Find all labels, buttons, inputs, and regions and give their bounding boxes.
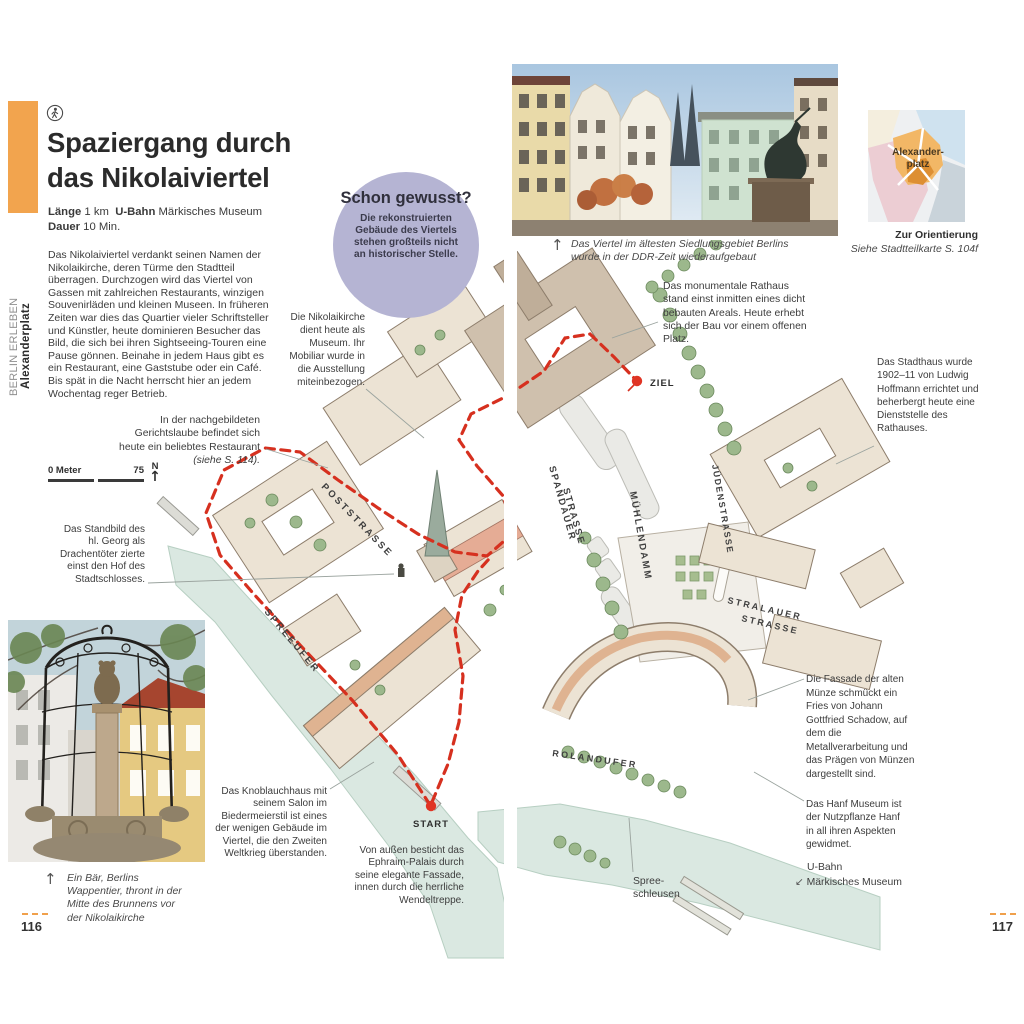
- tour-info: Länge 1 km U-Bahn Märkisches Museum Daue…: [48, 205, 288, 235]
- note-standbild: Das Standbild des hl. Georg als Drachent…: [55, 524, 145, 586]
- note-ubahn: U-Bahn ↙ Märkisches Museum: [795, 861, 925, 890]
- ubahn-station-line2: Märkisches Museum: [807, 877, 902, 888]
- top-photo-caption: Das Viertel im ältesten Siedlungsgebiet …: [571, 238, 799, 264]
- length-value: 1 km: [84, 206, 108, 218]
- sidebar-tab: [8, 101, 38, 213]
- page-number-right: 117: [992, 919, 1013, 934]
- duration-label: Dauer: [48, 221, 80, 233]
- book-spread: { "colors": { "accent_orange": "#F2A44E"…: [0, 0, 1024, 1024]
- left-page-dash: [22, 913, 48, 915]
- note-gerichtslaube: In der nachgebildeten Gerichtslaube befi…: [110, 414, 260, 468]
- orientation-caption: Zur Orientierung Siehe Stadtteilkarte S.…: [848, 229, 978, 256]
- scale-zero: 0 Meter: [48, 465, 81, 476]
- duration-value: 10 Min.: [83, 221, 120, 233]
- ubahn-station-line1: U-Bahn: [807, 862, 842, 873]
- ubahn-label: U-Bahn: [115, 206, 155, 218]
- length-label: Länge: [48, 206, 81, 218]
- page-number-left: 116: [21, 919, 42, 934]
- note-stadthaus: Das Stadthaus wurde 1902–11 von Ludwig H…: [877, 356, 979, 436]
- note-nikolaikirche: Die Nikolaikirche dient heute als Museum…: [282, 311, 365, 389]
- intro-paragraph: Das Nikolaiviertel verdankt seinen Namen…: [48, 249, 270, 400]
- bottom-photo-caption: Ein Bär, Berlins Wappentier, thront in d…: [67, 872, 189, 925]
- page-title: Spaziergang durch das Nikolaiviertel: [47, 126, 327, 195]
- bottom-photo: [8, 620, 205, 862]
- ubahn-arrow-icon: ↙: [795, 876, 804, 888]
- page-gutter: [504, 244, 517, 960]
- ziel-label: ZIEL: [650, 378, 675, 389]
- svg-text:platz: platz: [907, 159, 930, 170]
- svg-text:Alexander-: Alexander-: [892, 147, 944, 158]
- ubahn-value: Märkisches Museum: [159, 206, 263, 218]
- district-label: Alexanderplatz: [20, 303, 32, 389]
- ziel-marker: ZIEL: [628, 376, 675, 391]
- north-arrow: N ↑: [147, 462, 163, 484]
- badge-text: Die rekonstruierten Gebäude des Viertels…: [348, 213, 464, 261]
- scale-bar: 0 Meter 75: [48, 465, 144, 482]
- badge-title: Schon gewusst?: [333, 189, 479, 208]
- note-gerichtslaube-ref: (siehe S. 114).: [193, 455, 260, 466]
- top-caption-arrow-icon: ↑: [551, 239, 564, 252]
- statue-icon: [398, 563, 405, 577]
- note-knoblauchhaus: Das Knoblauchhaus mit seinem Salon im Bi…: [215, 786, 327, 860]
- walk-icon: [46, 104, 64, 122]
- north-arrow-icon: ↑: [149, 469, 161, 485]
- note-rathaus: Das monumentale Rathaus stand einst inmi…: [663, 280, 815, 346]
- note-ephraim: Von außen besticht das Ephraim-Palais du…: [352, 845, 464, 907]
- did-you-know-badge: Schon gewusst? Die rekonstruierten Gebäu…: [333, 172, 479, 318]
- scale-end: 75: [133, 465, 144, 476]
- sidebar-vertical-label: BERLIN ERLEBEN Alexanderplatz: [8, 218, 38, 396]
- series-label: BERLIN ERLEBEN: [8, 298, 20, 396]
- orientation-map: Alexander- platz: [868, 110, 965, 222]
- street-label-rolandufer: ROLANDUFER: [552, 748, 639, 770]
- stadthaus-building: [710, 378, 890, 537]
- note-spreeschleusen: Spree-schleusen: [633, 875, 703, 901]
- rathaus-building: [465, 248, 656, 428]
- top-photo: [512, 64, 838, 236]
- orientation-caption-sub: Siehe Stadtteilkarte S. 104f: [848, 243, 978, 257]
- note-muenze: Die Fassade der alten Münze schmückt ein…: [806, 673, 916, 781]
- start-label: START: [413, 819, 449, 830]
- bottom-caption-arrow-icon: ↑: [44, 873, 57, 886]
- rolandufer-building: [556, 635, 742, 714]
- right-page-dash: [990, 913, 1016, 915]
- note-hanf: Das Hanf Museum ist der Nutzpflanze Hanf…: [806, 798, 902, 851]
- orientation-caption-title: Zur Orientierung: [848, 229, 978, 243]
